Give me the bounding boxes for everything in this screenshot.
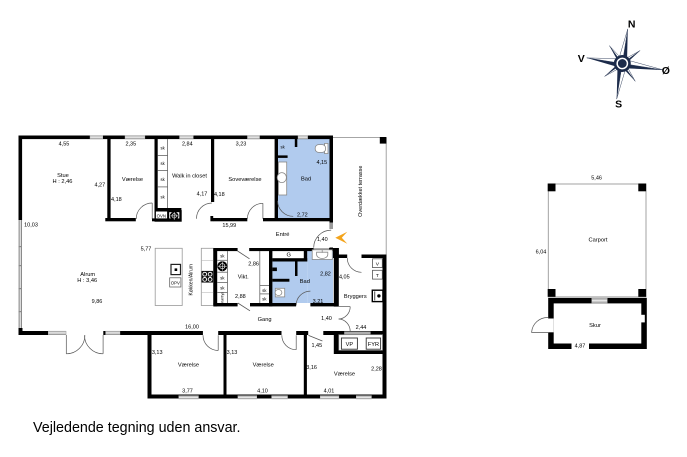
svg-text:Bad: Bad xyxy=(301,177,311,183)
svg-text:2,72: 2,72 xyxy=(297,213,308,219)
svg-text:Carport: Carport xyxy=(589,238,608,244)
svg-text:4,10: 4,10 xyxy=(257,389,268,395)
svg-text:1,45: 1,45 xyxy=(311,343,322,349)
svg-text:OPV: OPV xyxy=(171,280,180,285)
svg-text:4,05: 4,05 xyxy=(339,275,350,281)
svg-text:T: T xyxy=(376,273,379,279)
svg-text:Bad: Bad xyxy=(300,279,310,285)
svg-text:4,87: 4,87 xyxy=(575,344,586,350)
svg-text:2,88: 2,88 xyxy=(235,294,246,300)
svg-text:2,44: 2,44 xyxy=(356,325,367,331)
svg-text:5,46: 5,46 xyxy=(591,176,602,182)
svg-text:3,13: 3,13 xyxy=(152,350,163,356)
svg-text:4,17: 4,17 xyxy=(197,192,208,198)
svg-text:H : 2,46: H : 2,46 xyxy=(53,179,73,185)
svg-text:G: G xyxy=(286,253,290,259)
svg-text:4,15: 4,15 xyxy=(316,160,327,166)
svg-text:4,01: 4,01 xyxy=(324,389,335,395)
svg-text:Walk in closet: Walk in closet xyxy=(172,174,207,180)
svg-text:4,18: 4,18 xyxy=(214,192,225,198)
svg-text:10,03: 10,03 xyxy=(24,223,38,229)
svg-text:2,86: 2,86 xyxy=(248,262,259,268)
svg-text:S: S xyxy=(615,99,622,111)
svg-text:1,40: 1,40 xyxy=(317,237,328,243)
svg-text:Værelse: Værelse xyxy=(122,177,143,183)
svg-text:6,04: 6,04 xyxy=(536,249,547,255)
svg-text:V: V xyxy=(578,53,585,65)
svg-text:4,18: 4,18 xyxy=(111,197,122,203)
svg-text:N: N xyxy=(628,18,636,30)
svg-text:Vejledende tegning uden ansvar: Vejledende tegning uden ansvar. xyxy=(33,420,240,436)
svg-text:3,23: 3,23 xyxy=(236,141,247,147)
svg-text:5,77: 5,77 xyxy=(141,247,152,253)
svg-text:16,00: 16,00 xyxy=(185,325,199,331)
svg-text:Bryggers: Bryggers xyxy=(344,294,367,300)
svg-text:9,86: 9,86 xyxy=(92,299,103,305)
svg-text:Værelse: Værelse xyxy=(253,363,274,369)
svg-text:FYR: FYR xyxy=(368,342,379,348)
svg-text:2,35: 2,35 xyxy=(125,141,136,147)
svg-text:1,40: 1,40 xyxy=(321,316,332,322)
svg-text:Vikt.: Vikt. xyxy=(238,275,249,281)
svg-text:Ø: Ø xyxy=(662,65,670,77)
svg-text:Køl/frys: Køl/frys xyxy=(221,292,225,303)
svg-text:Værelse: Værelse xyxy=(178,363,199,369)
svg-text:VP: VP xyxy=(346,342,354,348)
svg-text:4,27: 4,27 xyxy=(94,183,105,189)
svg-text:3,16: 3,16 xyxy=(306,365,317,371)
svg-text:2,84: 2,84 xyxy=(182,141,193,147)
svg-text:2,28: 2,28 xyxy=(371,366,382,372)
svg-text:H : 3,46: H : 3,46 xyxy=(77,278,97,284)
svg-text:2,82: 2,82 xyxy=(320,272,331,278)
svg-text:3,77: 3,77 xyxy=(182,388,193,394)
svg-text:15,99: 15,99 xyxy=(222,223,236,229)
svg-text:Værelse: Værelse xyxy=(334,372,355,378)
svg-text:3,21: 3,21 xyxy=(313,299,324,305)
svg-text:Gang: Gang xyxy=(258,317,272,323)
svg-text:Køkken/Alrum: Køkken/Alrum xyxy=(188,264,194,295)
svg-text:Entré: Entré xyxy=(276,232,290,238)
svg-text:Soveværelse: Soveværelse xyxy=(228,177,261,183)
svg-text:3,13: 3,13 xyxy=(227,350,238,356)
svg-text:OVN: OVN xyxy=(157,213,166,218)
svg-text:Skur: Skur xyxy=(589,323,601,329)
svg-text:Overdækket terrasse: Overdækket terrasse xyxy=(358,166,364,217)
svg-text:4,55: 4,55 xyxy=(59,141,70,147)
